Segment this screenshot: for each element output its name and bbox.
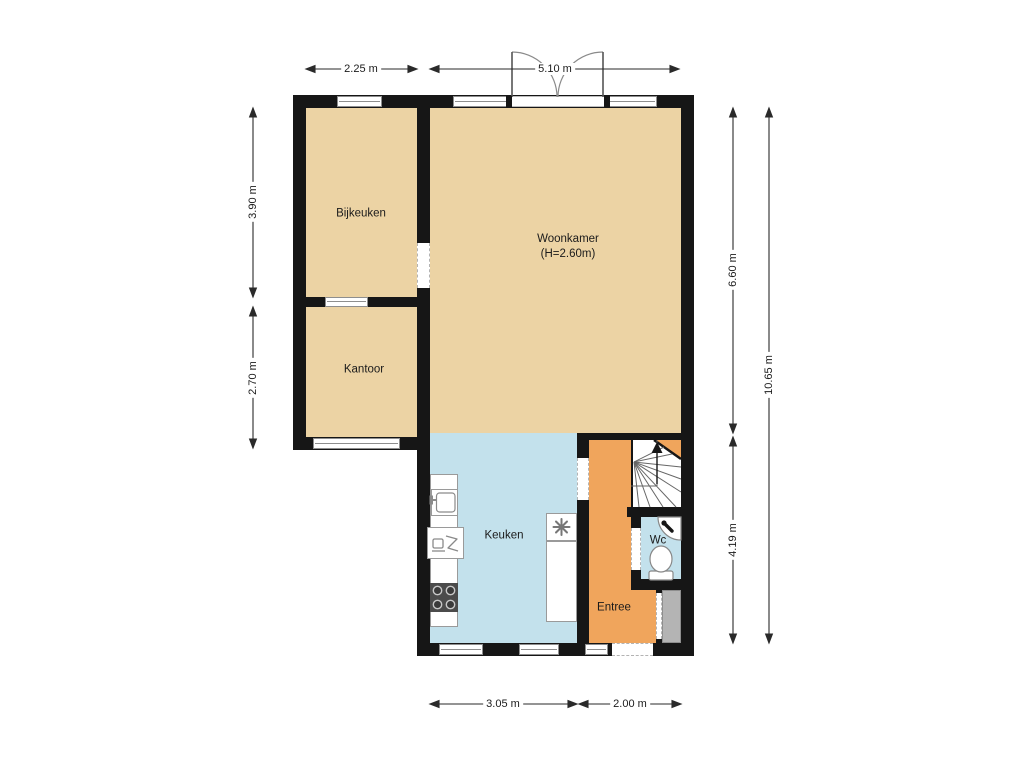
door-meter-closet xyxy=(656,593,662,639)
window-entree-bottom xyxy=(585,644,608,655)
kitchen-island-counter xyxy=(546,541,577,622)
wall-left xyxy=(293,95,306,450)
woonkamer-name: Woonkamer xyxy=(537,232,599,247)
room-label-woonkamer: Woonkamer (H=2.60m) xyxy=(537,232,599,262)
room-label-keuken: Keuken xyxy=(484,529,523,544)
room-label-bijkeuken: Bijkeuken xyxy=(336,207,386,222)
door-wc xyxy=(631,528,641,570)
kitchen-sink xyxy=(431,489,458,516)
room-bijkeuken xyxy=(306,108,417,297)
garden-doors-opening xyxy=(510,96,607,107)
wall-right xyxy=(681,95,694,656)
window-bijkeuken-kantoor xyxy=(325,297,368,307)
dishwasher xyxy=(427,527,464,559)
wall-center-vertical xyxy=(417,95,430,656)
dim-left-upper: 3.90 m xyxy=(247,182,259,222)
dim-right-upper: 6.60 m xyxy=(727,250,739,290)
woonkamer-height-note: (H=2.60m) xyxy=(537,247,599,262)
window-keuken-right xyxy=(519,644,559,655)
room-label-kantoor: Kantoor xyxy=(344,363,384,378)
room-label-wc: Wc xyxy=(650,534,667,549)
window-kantoor-bottom xyxy=(313,438,400,449)
opening-bijkeuken-woonkamer xyxy=(417,243,430,288)
front-door-opening xyxy=(612,643,653,656)
window-woonkamer-left xyxy=(453,96,510,107)
dim-bottom-left: 3.05 m xyxy=(483,698,523,710)
floor-plan: Bijkeuken Woonkamer (H=2.60m) Kantoor Ke… xyxy=(0,0,1024,768)
stove xyxy=(430,583,458,612)
room-woonkamer xyxy=(430,108,681,433)
wall-entree-top xyxy=(577,433,681,440)
dim-top-left: 2.25 m xyxy=(341,63,381,75)
dim-left-lower: 2.70 m xyxy=(247,358,259,398)
window-keuken-left xyxy=(439,644,483,655)
meter-closet xyxy=(662,590,681,643)
room-label-entree: Entree xyxy=(597,601,631,616)
dim-top-right: 5.10 m xyxy=(535,63,575,75)
dim-bottom-right: 2.00 m xyxy=(610,698,650,710)
door-keuken-entree xyxy=(577,458,589,500)
window-woonkamer-right xyxy=(607,96,657,107)
wall-stair-bottom xyxy=(627,507,681,517)
window-bijkeuken-top xyxy=(337,96,382,107)
dim-right-total: 10.65 m xyxy=(763,352,775,398)
dim-right-lower: 4.19 m xyxy=(727,520,739,560)
ventilation-unit xyxy=(546,513,577,541)
